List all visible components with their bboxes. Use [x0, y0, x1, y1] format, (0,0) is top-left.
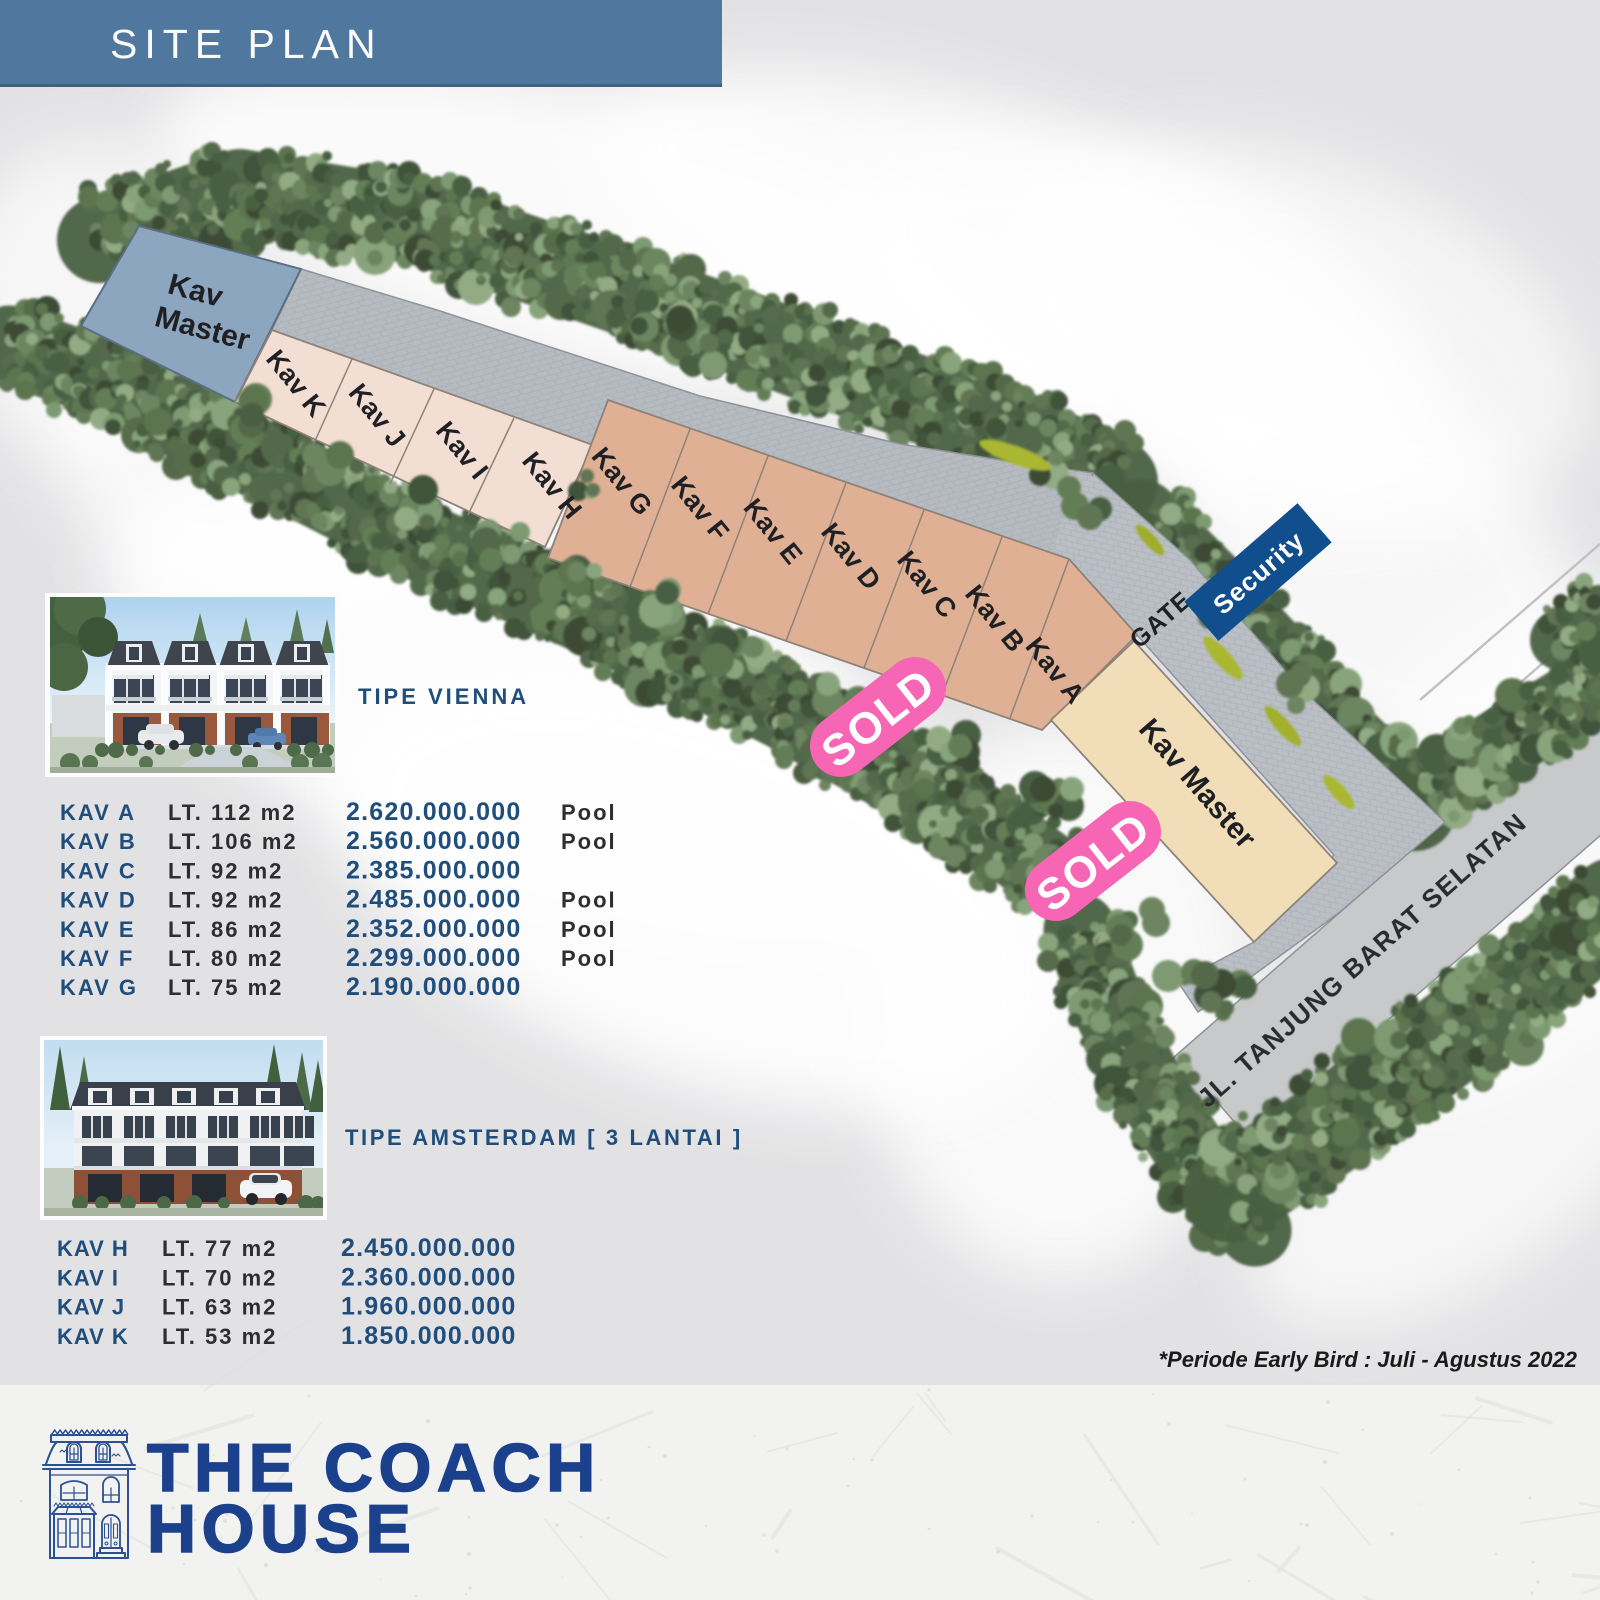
svg-text:TIPE VIENNA: TIPE VIENNA — [358, 684, 529, 709]
svg-text:*Periode Early Bird : Juli - A: *Periode Early Bird : Juli - Agustus 202… — [1158, 1347, 1577, 1372]
svg-text:2.299.000.000: 2.299.000.000 — [346, 944, 521, 972]
svg-text:KAV F: KAV F — [60, 946, 134, 971]
svg-text:LT. 92 m2: LT. 92 m2 — [168, 858, 283, 883]
svg-text:KAV I: KAV I — [57, 1265, 119, 1290]
svg-text:LT. 80 m2: LT. 80 m2 — [168, 946, 283, 971]
svg-text:LT. 70 m2: LT. 70 m2 — [162, 1265, 277, 1290]
svg-text:SITE PLAN: SITE PLAN — [110, 21, 383, 67]
svg-text:LT. 75 m2: LT. 75 m2 — [168, 975, 283, 1000]
svg-text:Pool: Pool — [561, 888, 617, 913]
svg-text:KAV C: KAV C — [60, 858, 137, 883]
svg-text:KAV E: KAV E — [60, 917, 136, 942]
svg-text:Pool: Pool — [561, 946, 617, 971]
svg-text:Pool: Pool — [561, 829, 617, 854]
svg-text:2.352.000.000: 2.352.000.000 — [346, 915, 521, 943]
svg-text:LT. 92 m2: LT. 92 m2 — [168, 888, 283, 913]
svg-text:TIPE AMSTERDAM [ 3 LANTAI ]: TIPE AMSTERDAM [ 3 LANTAI ] — [345, 1125, 743, 1150]
svg-text:KAV H: KAV H — [57, 1236, 129, 1261]
svg-text:2.190.000.000: 2.190.000.000 — [346, 973, 521, 1001]
svg-text:LT. 112 m2: LT. 112 m2 — [168, 800, 296, 825]
svg-text:2.560.000.000: 2.560.000.000 — [346, 827, 521, 855]
svg-text:LT. 86 m2: LT. 86 m2 — [168, 917, 283, 942]
svg-text:KAV D: KAV D — [60, 888, 137, 913]
svg-text:2.360.000.000: 2.360.000.000 — [341, 1263, 516, 1291]
svg-text:2.450.000.000: 2.450.000.000 — [341, 1234, 516, 1262]
svg-text:2.620.000.000: 2.620.000.000 — [346, 798, 521, 826]
svg-text:KAV B: KAV B — [60, 829, 137, 854]
svg-text:KAV G: KAV G — [60, 975, 138, 1000]
svg-text:LT. 63 m2: LT. 63 m2 — [162, 1295, 277, 1320]
svg-text:1.850.000.000: 1.850.000.000 — [341, 1322, 516, 1350]
svg-text:KAV J: KAV J — [57, 1295, 125, 1320]
svg-text:2.385.000.000: 2.385.000.000 — [346, 856, 521, 884]
svg-text:LT. 53 m2: LT. 53 m2 — [162, 1324, 277, 1349]
svg-text:2.485.000.000: 2.485.000.000 — [346, 886, 521, 914]
svg-text:HOUSE: HOUSE — [147, 1491, 416, 1567]
svg-text:Pool: Pool — [561, 917, 617, 942]
svg-text:LT. 77 m2: LT. 77 m2 — [162, 1236, 277, 1261]
svg-text:1.960.000.000: 1.960.000.000 — [341, 1293, 516, 1321]
svg-text:KAV K: KAV K — [57, 1324, 129, 1349]
svg-text:LT. 106 m2: LT. 106 m2 — [168, 829, 298, 854]
svg-text:Pool: Pool — [561, 800, 617, 825]
svg-text:KAV A: KAV A — [60, 800, 136, 825]
